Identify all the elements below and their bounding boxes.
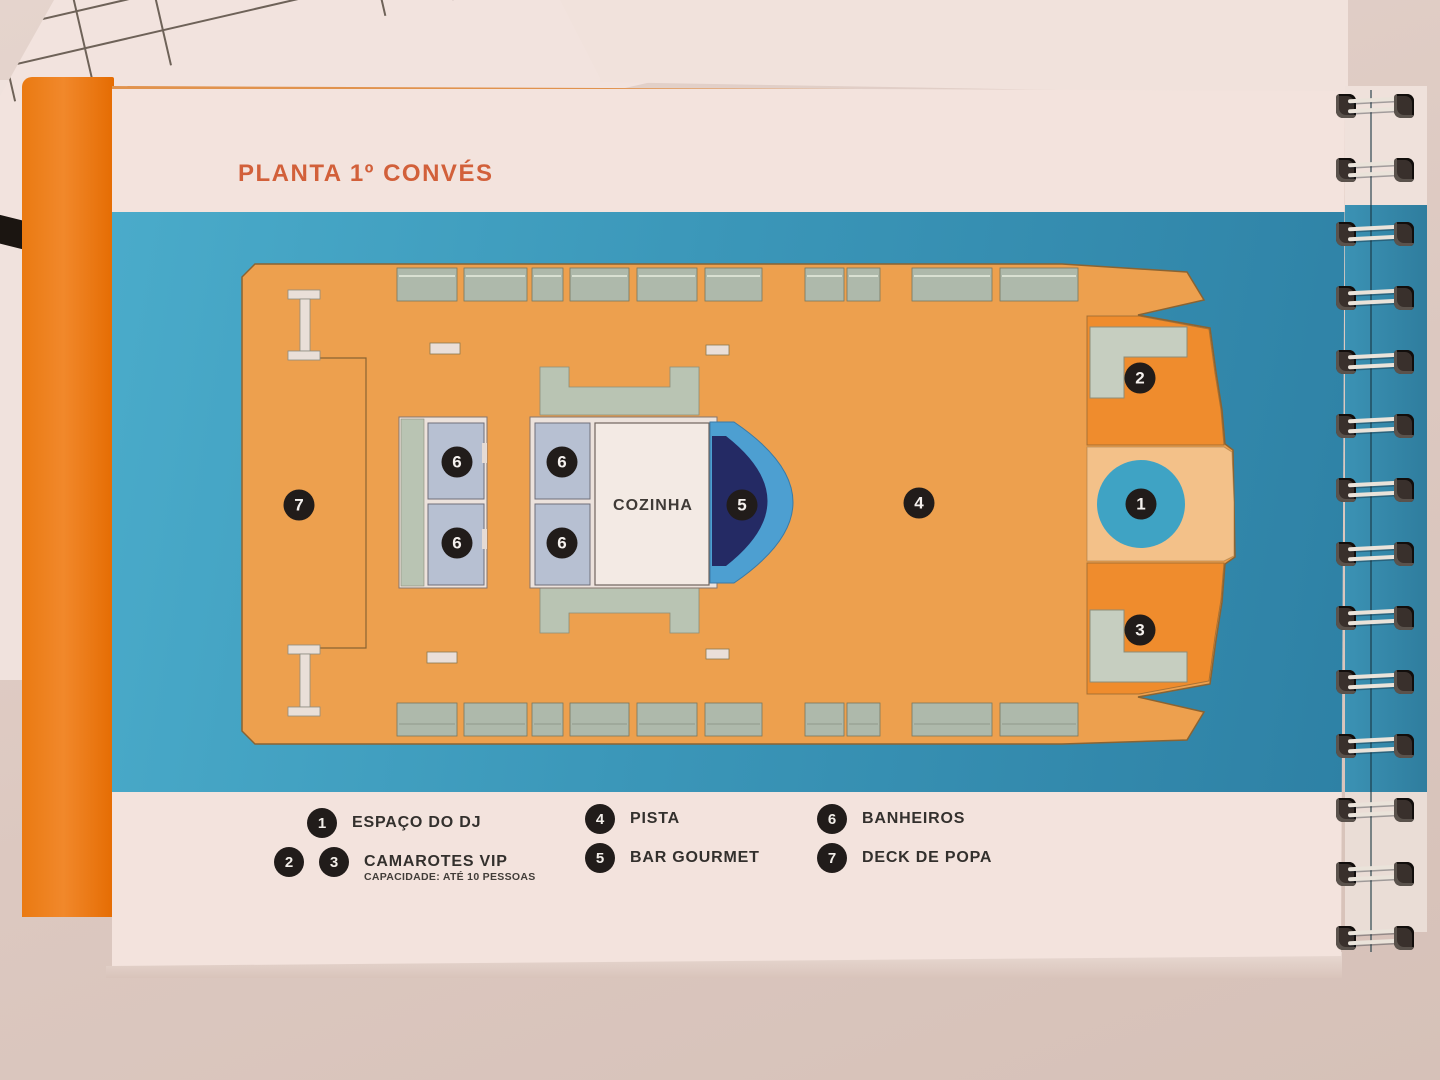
legend-circle-6: 6: [817, 804, 847, 834]
table-line: [110, 0, 172, 65]
binding-loop: [1336, 542, 1414, 566]
photo-of-booklet: { "page": { "title": "PLANTA 1º CONVÉS" …: [0, 0, 1440, 1080]
legend-label: PISTA: [630, 804, 680, 834]
legend-circle-4: 4: [585, 804, 615, 834]
kitchen-label: COZINHA: [613, 497, 693, 514]
marker-6: 6: [557, 534, 566, 553]
marker-2: 2: [1135, 369, 1144, 388]
legend-label: BAR GOURMET: [630, 843, 760, 873]
spiral-binding: [1336, 94, 1414, 950]
bathroom-left-green-strip: [401, 419, 424, 586]
legend: 1 ESPAÇO DO DJ 2 3 CAMAROTES VIP CAPACID…: [112, 792, 1345, 966]
marker-1: 1: [1136, 495, 1145, 514]
table-cell: 13: [25, 0, 44, 12]
legend-item-dj: 1 ESPAÇO DO DJ: [307, 808, 481, 838]
binding-loop: [1336, 926, 1414, 950]
legend-circle-2: 2: [274, 847, 304, 877]
legend-circle-3: 3: [319, 847, 349, 877]
binding-loop: [1336, 670, 1414, 694]
legend-item-camarotes: 2 3 CAMAROTES VIP CAPACIDADE: ATÉ 10 PES…: [274, 847, 536, 883]
legend-label: ESPAÇO DO DJ: [352, 808, 481, 838]
binding-loop: [1336, 286, 1414, 310]
legend-circle-7: 7: [817, 843, 847, 873]
deck-plan: COZINHA 7 6 6 6 6 5 4 1 2 3: [112, 212, 1345, 792]
marker-5: 5: [737, 496, 746, 515]
binding-loop: [1336, 862, 1414, 886]
orange-cover-edge: [22, 77, 114, 917]
binding-loop: [1336, 478, 1414, 502]
binding-loop: [1336, 350, 1414, 374]
binding-loop: [1336, 414, 1414, 438]
bottom-benches: [397, 703, 1078, 736]
table-line: [324, 0, 386, 16]
legend-item-bar: 5 BAR GOURMET: [585, 843, 760, 873]
top-benches: [397, 268, 1078, 301]
booklet-page: PLANTA 1º CONVÉS: [112, 86, 1345, 966]
legend-label: DECK DE POPA: [862, 843, 992, 873]
marker-6: 6: [557, 453, 566, 472]
table-line: [0, 0, 660, 43]
legend-sublabel: CAPACIDADE: ATÉ 10 PESSOAS: [364, 871, 536, 883]
legend-circle-1: 1: [307, 808, 337, 838]
binding-seam: [1370, 90, 1372, 952]
table-line: [0, 0, 660, 80]
binding-loop: [1336, 94, 1414, 118]
binding-loop: [1336, 734, 1414, 758]
deck-plan-panel: COZINHA 7 6 6 6 6 5 4 1 2 3: [112, 212, 1345, 792]
marker-3: 3: [1135, 621, 1144, 640]
binding-loop: [1336, 222, 1414, 246]
marker-6: 6: [452, 534, 461, 553]
legend-item-banheiros: 6 BANHEIROS: [817, 804, 965, 834]
legend-item-popa: 7 DECK DE POPA: [817, 843, 992, 873]
bathroom-door: [482, 443, 487, 463]
legend-label: BANHEIROS: [862, 804, 965, 834]
marker-4: 4: [914, 494, 924, 513]
bathroom-door: [482, 529, 487, 549]
page-title: PLANTA 1º CONVÉS: [238, 160, 493, 188]
binding-loop: [1336, 606, 1414, 630]
side-paper-plain: [560, 0, 1348, 100]
marker-7: 7: [294, 496, 303, 515]
binding-loop: [1336, 158, 1414, 182]
legend-item-pista: 4 PISTA: [585, 804, 680, 834]
legend-circle-5: 5: [585, 843, 615, 873]
marker-6: 6: [452, 453, 461, 472]
table-line: [32, 0, 94, 83]
binding-loop: [1336, 798, 1414, 822]
